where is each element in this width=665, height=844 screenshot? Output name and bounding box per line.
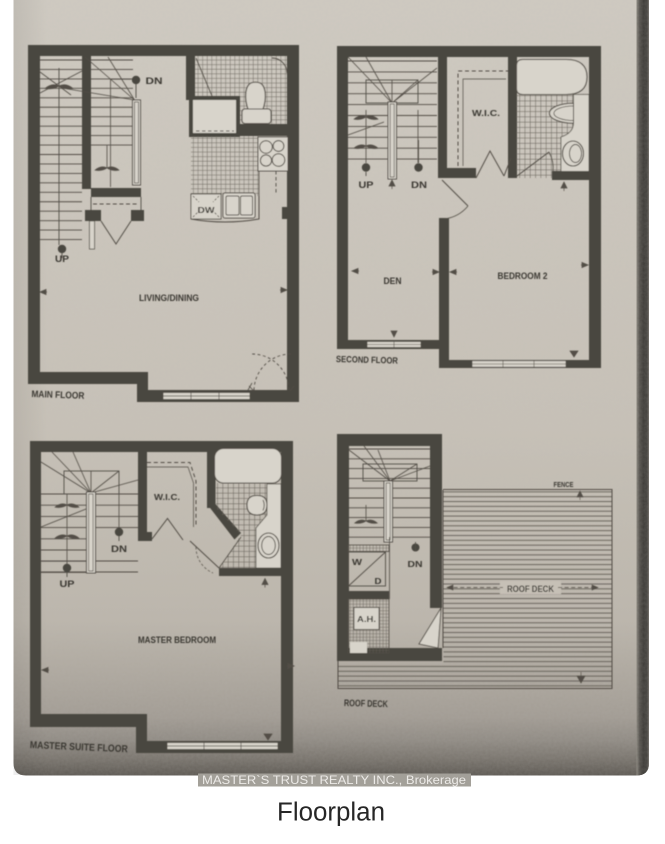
svg-text:MASTER BEDROOM: MASTER BEDROOM	[138, 635, 216, 645]
svg-text:UP: UP	[60, 579, 75, 589]
svg-text:MAIN FLOOR: MAIN FLOOR	[31, 389, 84, 402]
svg-text:DW: DW	[198, 205, 216, 215]
svg-text:MASTER`S TRUST REALTY INC., Br: MASTER`S TRUST REALTY INC., Brokerage	[202, 773, 466, 787]
svg-text:ROOF DECK: ROOF DECK	[507, 584, 554, 594]
svg-text:LIVING/DINING: LIVING/DINING	[139, 293, 199, 303]
svg-text:DN: DN	[408, 559, 423, 569]
svg-text:DN: DN	[111, 544, 127, 554]
svg-text:BEDROOM 2: BEDROOM 2	[498, 271, 548, 281]
svg-text:A.H.: A.H.	[357, 614, 376, 624]
svg-text:DEN: DEN	[384, 276, 402, 286]
svg-text:Floorplan: Floorplan	[277, 799, 385, 827]
svg-text:UP: UP	[55, 254, 69, 264]
svg-text:W: W	[352, 557, 363, 567]
svg-text:DN: DN	[146, 76, 163, 86]
svg-text:D: D	[375, 576, 382, 586]
svg-text:ROOF DECK: ROOF DECK	[344, 698, 388, 710]
svg-text:UP: UP	[359, 180, 374, 190]
svg-text:W.I.C.: W.I.C.	[154, 492, 180, 502]
svg-text:FENCE: FENCE	[554, 482, 574, 489]
svg-text:DN: DN	[411, 180, 427, 190]
svg-text:W.I.C.: W.I.C.	[472, 108, 500, 118]
svg-text:SECOND FLOOR: SECOND FLOOR	[336, 354, 399, 366]
